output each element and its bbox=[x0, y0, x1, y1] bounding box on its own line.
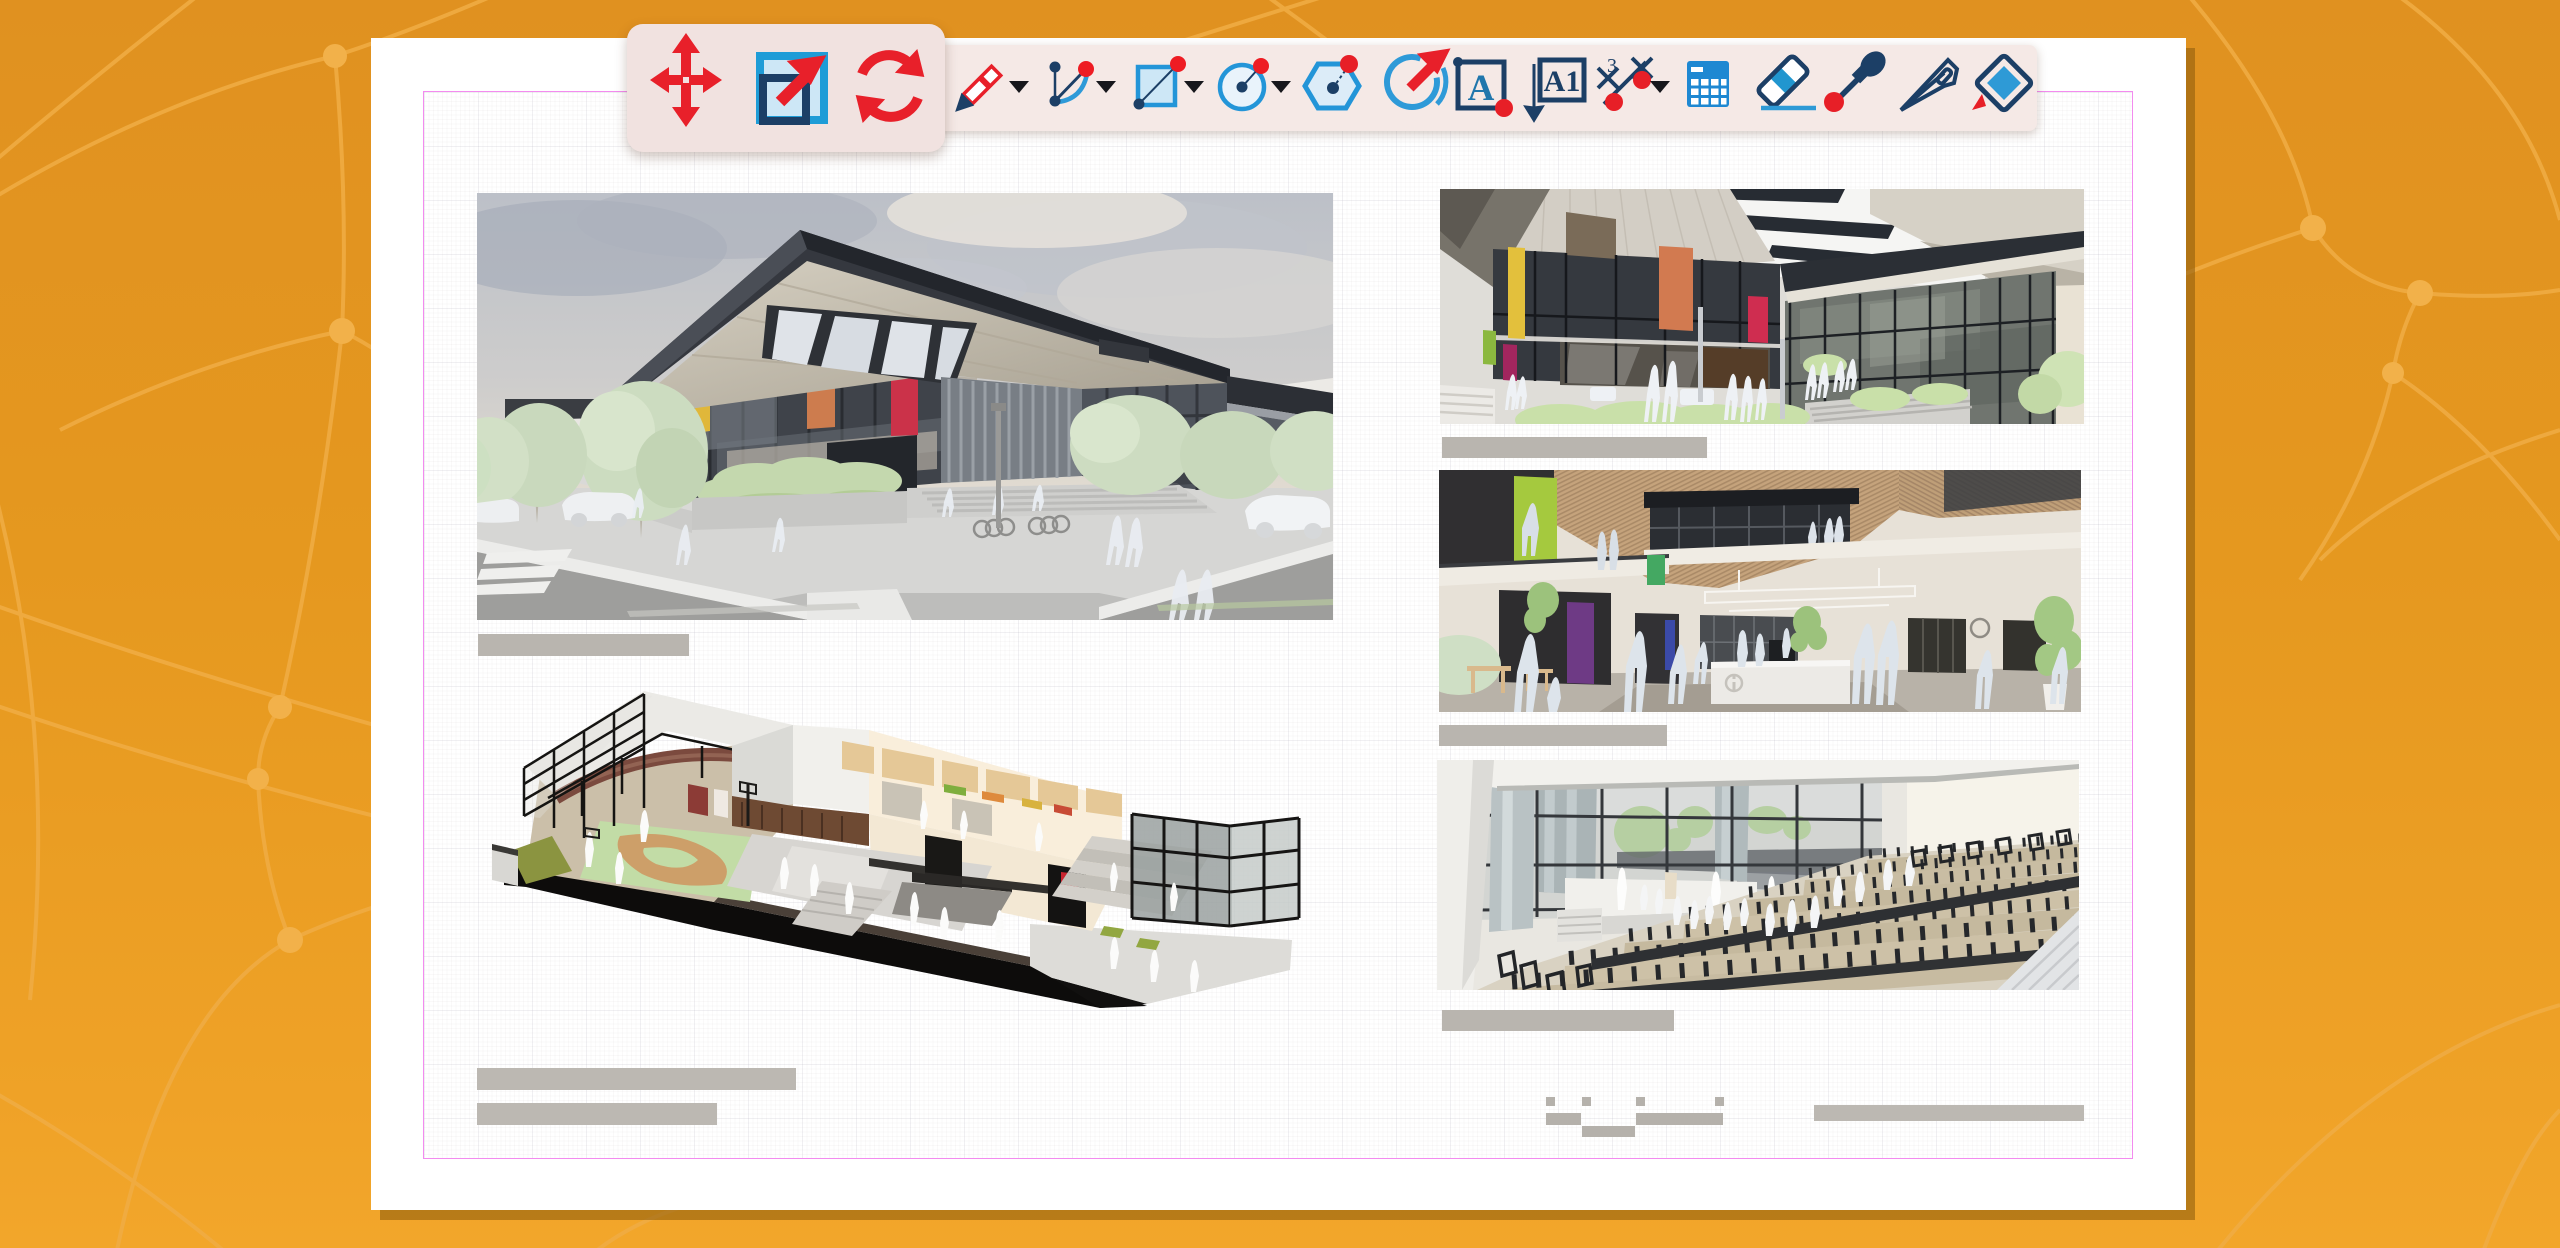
svg-text:A: A bbox=[1468, 68, 1495, 109]
svg-text:3: 3 bbox=[1607, 55, 1617, 77]
svg-text:A1: A1 bbox=[1544, 65, 1581, 98]
